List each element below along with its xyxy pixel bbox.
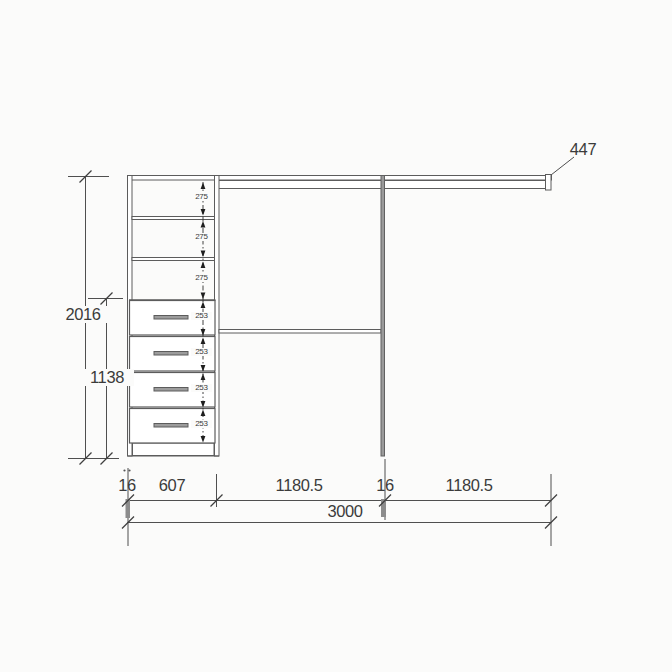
shelf-1 <box>132 217 215 220</box>
dim-label-drawer-3: 253 <box>191 384 212 392</box>
dim-label-drawer-2: 253 <box>191 348 212 356</box>
dim-label-left-bay-width: 1180.5 <box>266 477 332 494</box>
plinth-base <box>133 443 215 456</box>
drawing-canvas-svg <box>0 0 672 672</box>
dim-label-divider-thickness: 16 <box>371 477 399 494</box>
dim-label-left-panel-thickness: 16 <box>113 477 141 494</box>
dim-arrow-up <box>201 221 206 228</box>
dim-arrow-down <box>201 293 206 300</box>
dim-label-drawer-4: 253 <box>191 420 212 428</box>
drawer-4-handle <box>154 424 188 428</box>
drawer-1-handle <box>154 316 188 320</box>
wardrobe-dimension-drawing: 447 2016 1138 16 607 1180.5 16 1180.5 30… <box>0 0 672 672</box>
dim-label-drawer-1: 253 <box>191 312 212 320</box>
dim-arrow-down <box>201 209 206 216</box>
dim-arrow-up <box>201 262 206 269</box>
dim-label-cabinet-interior-width: 607 <box>146 477 198 494</box>
drawer-2-handle <box>154 352 188 356</box>
dim-label-right-bay-width: 1180.5 <box>436 477 502 494</box>
drawer-3-handle <box>154 388 188 392</box>
top-shelf-panel <box>128 176 552 181</box>
panel-end-cap <box>546 175 552 191</box>
detail-dot <box>128 469 130 471</box>
dim-label-total-width: 3000 <box>318 503 372 520</box>
dim-arrow-up <box>201 183 206 190</box>
dim-label-shelf-section-2: 275 <box>191 233 212 241</box>
dim-arrow-down <box>201 251 206 258</box>
dim-label-total-height: 2016 <box>56 306 110 323</box>
dim-label-shelf-section-3: 275 <box>191 274 212 282</box>
middle-hanging-rail <box>219 330 381 334</box>
dim-label-top-shelf-depth: 447 <box>561 141 605 158</box>
center-divider-panel <box>381 176 385 457</box>
shelf-2 <box>132 258 215 261</box>
detail-dot <box>123 469 125 471</box>
dim-label-lower-section-height: 1138 <box>80 369 134 386</box>
leader-line-447 <box>551 157 574 175</box>
dim-label-shelf-section-1: 275 <box>191 193 212 201</box>
